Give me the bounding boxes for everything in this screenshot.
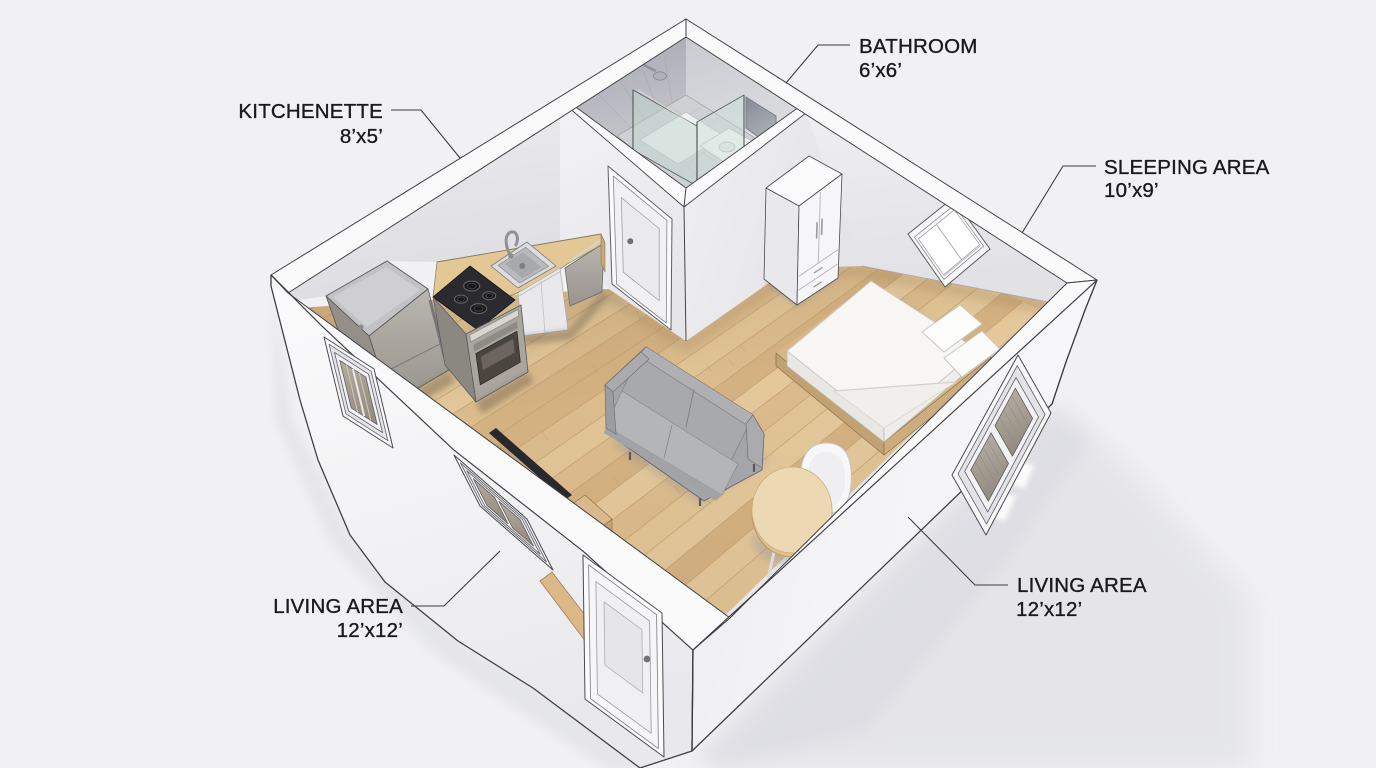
svg-text:6’x6’: 6’x6’ bbox=[859, 59, 902, 82]
svg-text:12’x12’: 12’x12’ bbox=[337, 619, 403, 642]
svg-text:10’x9’: 10’x9’ bbox=[1104, 179, 1159, 202]
svg-text:BATHROOM: BATHROOM bbox=[859, 35, 978, 58]
svg-text:LIVING AREA: LIVING AREA bbox=[1017, 574, 1147, 597]
svg-text:12’x12’: 12’x12’ bbox=[1016, 598, 1082, 621]
svg-text:SLEEPING AREA: SLEEPING AREA bbox=[1104, 156, 1270, 179]
svg-text:8’x5’: 8’x5’ bbox=[340, 125, 383, 148]
svg-text:LIVING AREA: LIVING AREA bbox=[273, 595, 403, 618]
svg-text:KITCHENETTE: KITCHENETTE bbox=[238, 100, 383, 123]
